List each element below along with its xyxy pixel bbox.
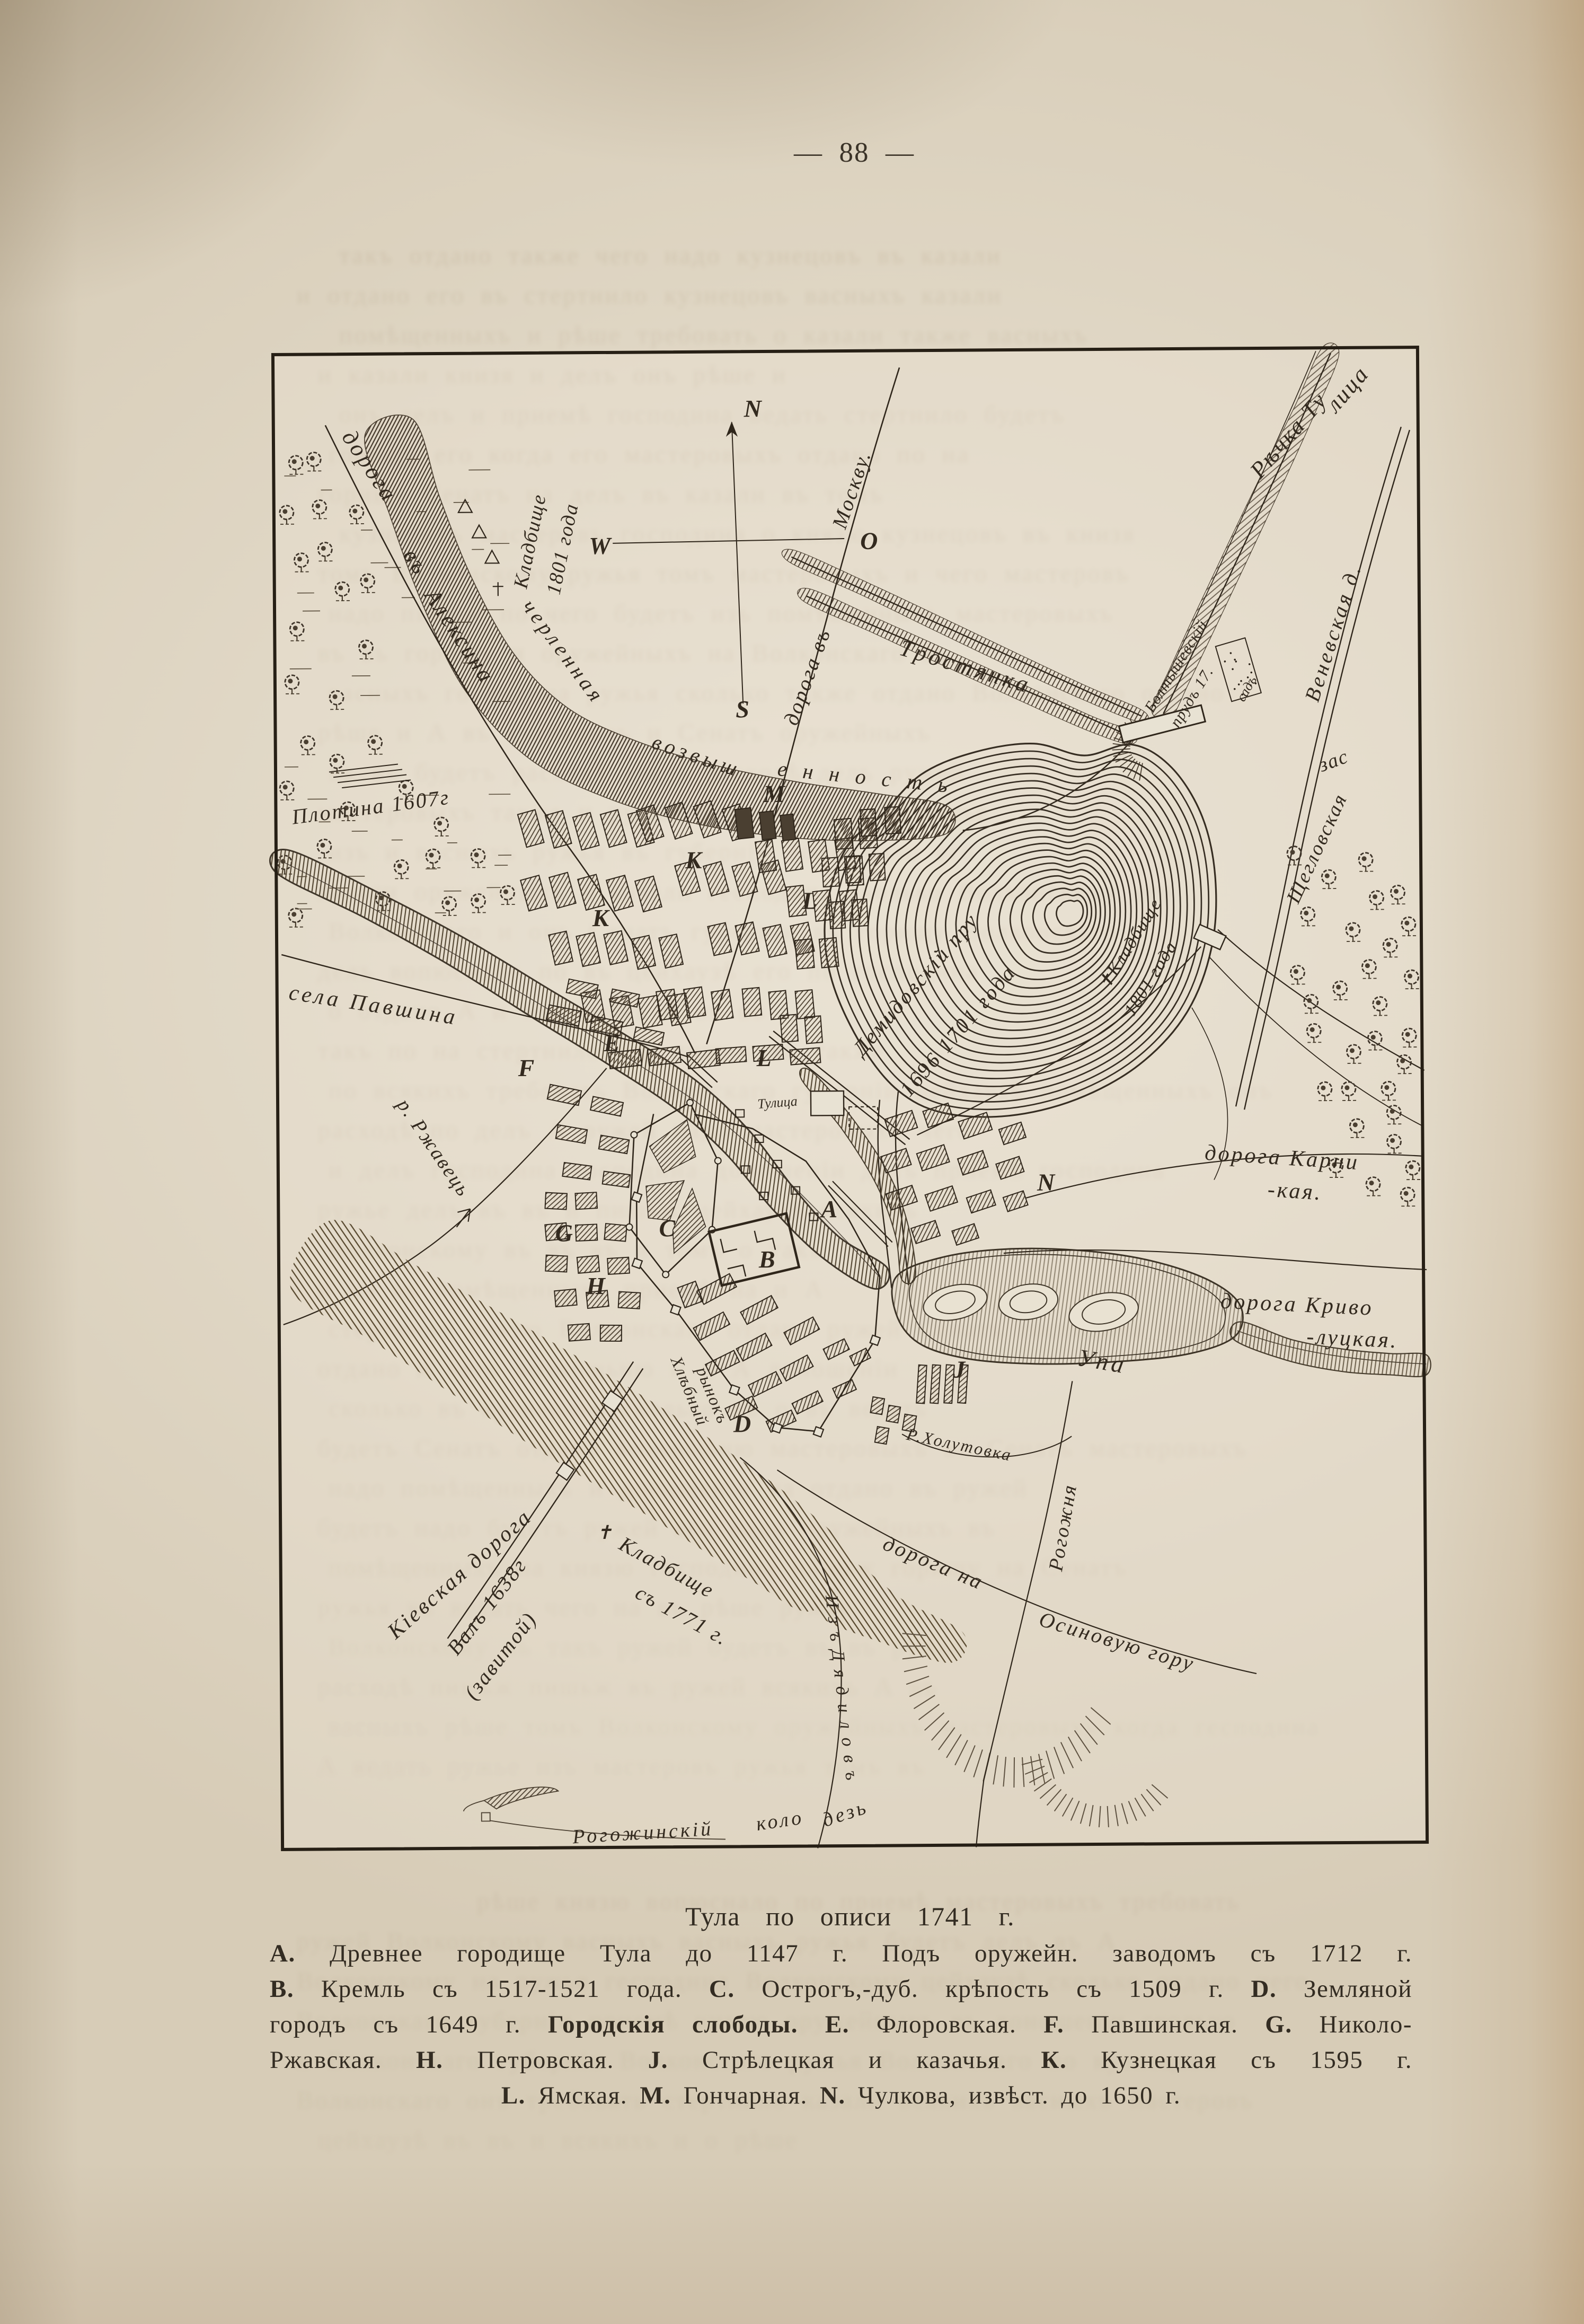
svg-text:-кая.: -кая. [1267,1177,1323,1205]
svg-text:✝: ✝ [596,1522,612,1543]
svg-text:S: S [736,696,749,723]
svg-text:-луцкая.: -луцкая. [1306,1324,1399,1353]
svg-text:L: L [756,1044,771,1071]
svg-text:А: А [819,1195,837,1222]
svg-text:В: В [758,1246,775,1273]
svg-text:D: D [733,1410,751,1437]
svg-text:К: К [685,847,703,874]
svg-text:М: М [763,780,786,807]
svg-text:N: N [743,395,762,422]
svg-text:F: F [517,1054,534,1081]
svg-text:К: К [592,904,610,931]
svg-text:J: J [952,1356,966,1383]
svg-text:L: L [801,887,817,914]
svg-text:N: N [1037,1168,1056,1195]
svg-text:W: W [589,532,612,559]
svg-text:Н: Н [586,1272,606,1299]
svg-text:С: С [659,1214,676,1242]
svg-text:O: O [860,527,878,554]
svg-text:Тулица: Тулица [757,1093,798,1112]
svg-text:G: G [555,1219,573,1246]
svg-text:Е: Е [603,1029,620,1057]
